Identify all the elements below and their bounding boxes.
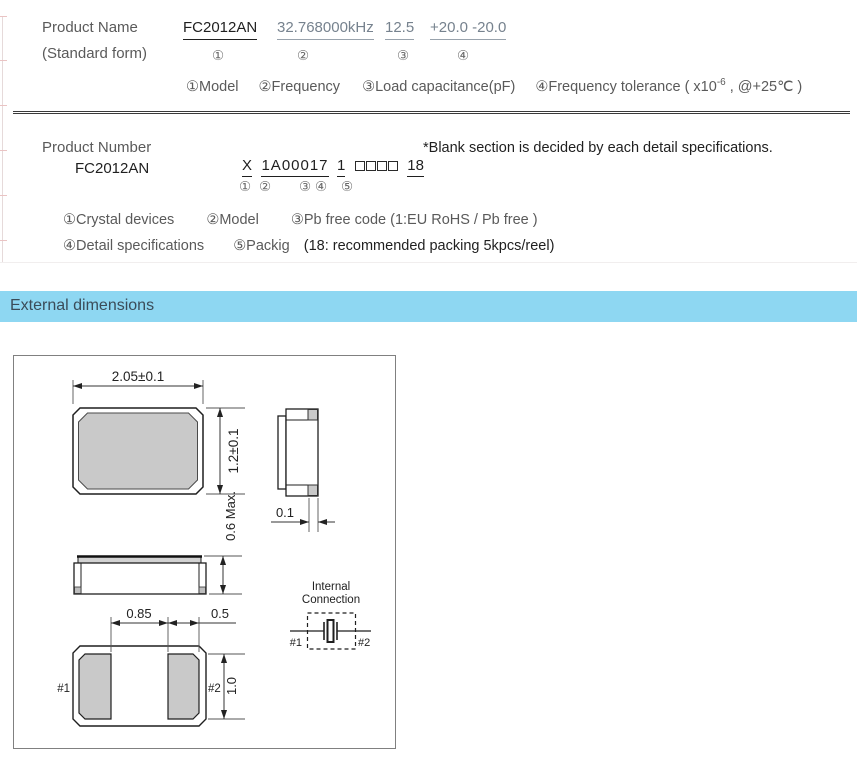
dim-label-pad-height: 1.0 xyxy=(224,677,239,695)
product-name-tolerance: +20.0 -20.0 xyxy=(430,19,506,40)
standard-form-label: (Standard form) xyxy=(42,45,147,64)
pn-legend-1: ①Crystal devices ②Model ③Pb free code (1… xyxy=(63,211,538,229)
table-tick xyxy=(0,195,7,196)
circled-2: ② xyxy=(297,48,309,64)
side-view-pad-left xyxy=(75,587,82,594)
code-pbfree: 1 xyxy=(337,157,345,177)
product-name-model: FC2012AN xyxy=(183,19,257,40)
pad1-label: #1 xyxy=(57,683,70,695)
bottom-view-pad1 xyxy=(79,654,111,719)
end-view-body xyxy=(286,409,318,496)
blank-box xyxy=(388,161,398,171)
circled-1: ① xyxy=(212,48,224,64)
legend-packing-note: (18: recommended packing 5kpcs/reel) xyxy=(304,238,555,254)
side-view-body xyxy=(74,563,206,594)
dim-label-pad-width: 0.5 xyxy=(211,606,229,621)
end-view-pad-top xyxy=(308,410,318,421)
product-name-label: Product Name xyxy=(42,19,138,38)
internal-connection-label-1: Internal xyxy=(312,581,350,593)
legend-tolerance-pre: ④Frequency tolerance ( x10 xyxy=(535,79,716,95)
blank-box xyxy=(355,161,365,171)
pn-legend-2: ④Detail specifications ⑤Packig (18: reco… xyxy=(63,237,554,255)
end-view-lid xyxy=(278,416,286,489)
pn-circled-1: ① xyxy=(239,179,251,195)
code-blank-boxes xyxy=(355,157,399,174)
blank-section-note: *Blank section is decided by each detail… xyxy=(423,139,773,157)
blank-box xyxy=(366,161,376,171)
row-divider xyxy=(0,262,857,263)
table-tick xyxy=(0,150,7,151)
legend-tolerance-sup: -6 xyxy=(717,77,726,88)
internal-connection-label-2: Connection xyxy=(302,594,360,606)
legend-model: ①Model xyxy=(186,79,239,95)
blank-box xyxy=(377,161,387,171)
side-view: 0.6 Max. xyxy=(74,491,242,594)
dim-label-top-height: 1.2±0.1 xyxy=(226,429,241,474)
pn-circled-4: ④ xyxy=(315,179,327,195)
ic-pin1-label: #1 xyxy=(290,637,302,649)
bottom-view: #1 #2 0.85 0.5 1.0 xyxy=(57,606,245,726)
crystal-symbol xyxy=(328,620,334,642)
table-edge-line xyxy=(2,16,3,263)
top-view: 2.05±0.1 1.2±0.1 xyxy=(73,369,245,494)
side-view-pad-right xyxy=(199,587,206,594)
legend-pbfree: ③Pb free code (1:EU RoHS / Pb free ) xyxy=(291,212,538,228)
product-name-frequency: 32.768000kHz xyxy=(277,19,374,40)
end-view: 0.1 xyxy=(271,409,335,532)
dim-label-pad-gap: 0.85 xyxy=(126,606,151,621)
pn-circled-2: ② xyxy=(259,179,271,195)
table-tick xyxy=(0,60,7,61)
dim-label-top-width: 2.05±0.1 xyxy=(112,369,164,384)
pad2-label: #2 xyxy=(208,683,221,695)
product-number-code: X 1A00017 1 18 xyxy=(242,157,424,177)
legend-load: ③Load capacitance(pF) xyxy=(362,79,515,95)
legend-crystal-devices: ①Crystal devices xyxy=(63,212,174,228)
code-packing: 18 xyxy=(407,157,424,177)
dimensions-diagram: 2.05±0.1 1.2±0.1 0.1 0.6 Max. xyxy=(14,356,395,748)
section-header-bar: External dimensions xyxy=(0,291,857,322)
legend-tolerance-post: , @+25℃ ) xyxy=(726,79,803,95)
pn-circled-3: ③ xyxy=(299,179,311,195)
internal-connection: Internal Connection #1 #2 xyxy=(290,581,371,649)
section-divider xyxy=(13,111,850,114)
code-model: 1A00017 xyxy=(261,157,328,177)
dim-label-lid-offset: 0.1 xyxy=(276,505,294,520)
legend-packing: ⑤Packig xyxy=(233,238,290,254)
circled-3: ③ xyxy=(397,48,409,64)
product-number-model: FC2012AN xyxy=(75,160,149,179)
section-title: External dimensions xyxy=(10,297,154,315)
legend-detail-specs: ④Detail specifications xyxy=(63,238,204,254)
table-tick xyxy=(0,105,7,106)
dim-label-height-max: 0.6 Max. xyxy=(223,491,238,541)
ic-pin2-label: #2 xyxy=(358,637,370,649)
circled-4: ④ xyxy=(457,48,469,64)
dimensions-diagram-frame: 2.05±0.1 1.2±0.1 0.1 0.6 Max. xyxy=(13,355,396,749)
legend-frequency: ②Frequency xyxy=(259,79,341,95)
legend-pn-model: ②Model xyxy=(206,212,259,228)
top-view-lid-surface xyxy=(79,413,198,489)
end-view-pad-bottom xyxy=(308,485,318,496)
bottom-view-pad2 xyxy=(168,654,199,719)
table-tick xyxy=(0,240,7,241)
product-number-label: Product Number xyxy=(42,139,151,158)
product-name-load-cap: 12.5 xyxy=(385,19,414,40)
product-name-legend: ①Model ②Frequency ③Load capacitance(pF) … xyxy=(186,78,802,96)
pn-circled-5: ⑤ xyxy=(341,179,353,195)
table-tick xyxy=(0,16,7,17)
code-crystal-device: X xyxy=(242,157,252,177)
